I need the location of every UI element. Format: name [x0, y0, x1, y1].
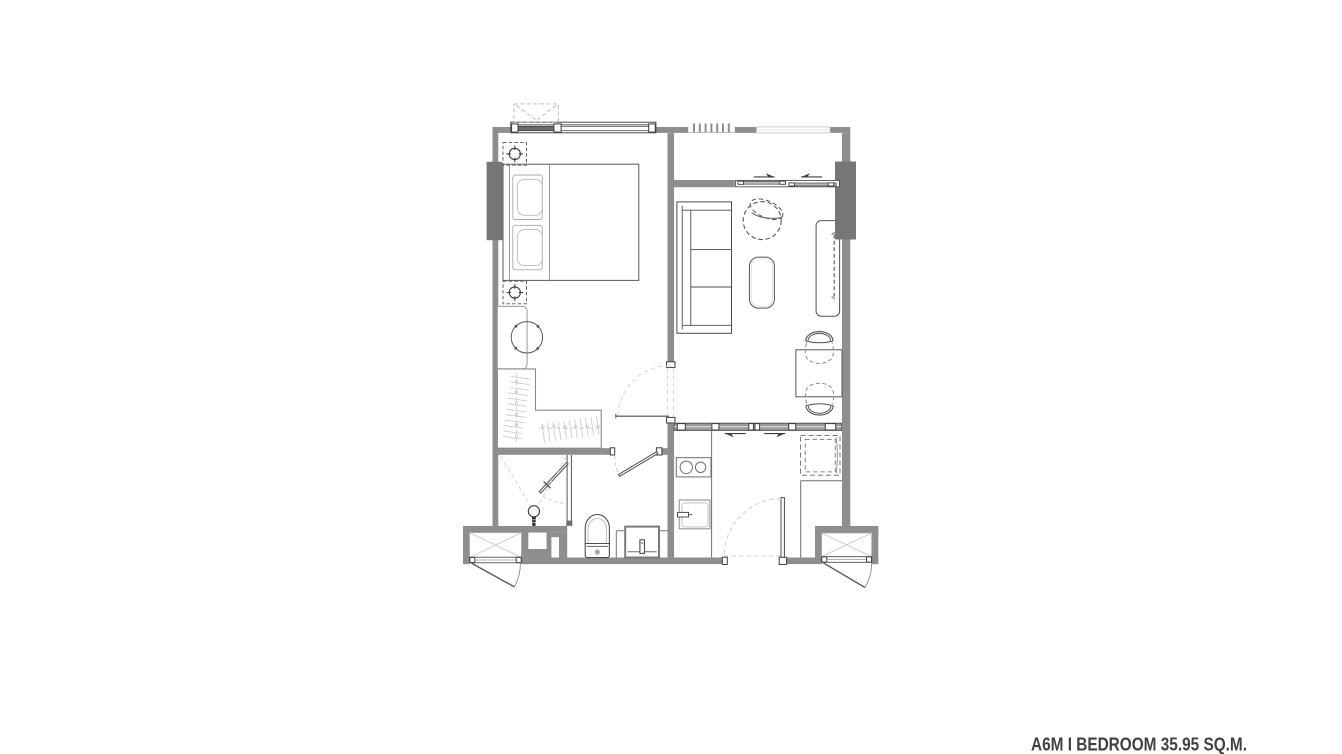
- svg-text:A6M I BEDROOM 35.95 SQ.M.: A6M I BEDROOM 35.95 SQ.M.: [1031, 734, 1247, 754]
